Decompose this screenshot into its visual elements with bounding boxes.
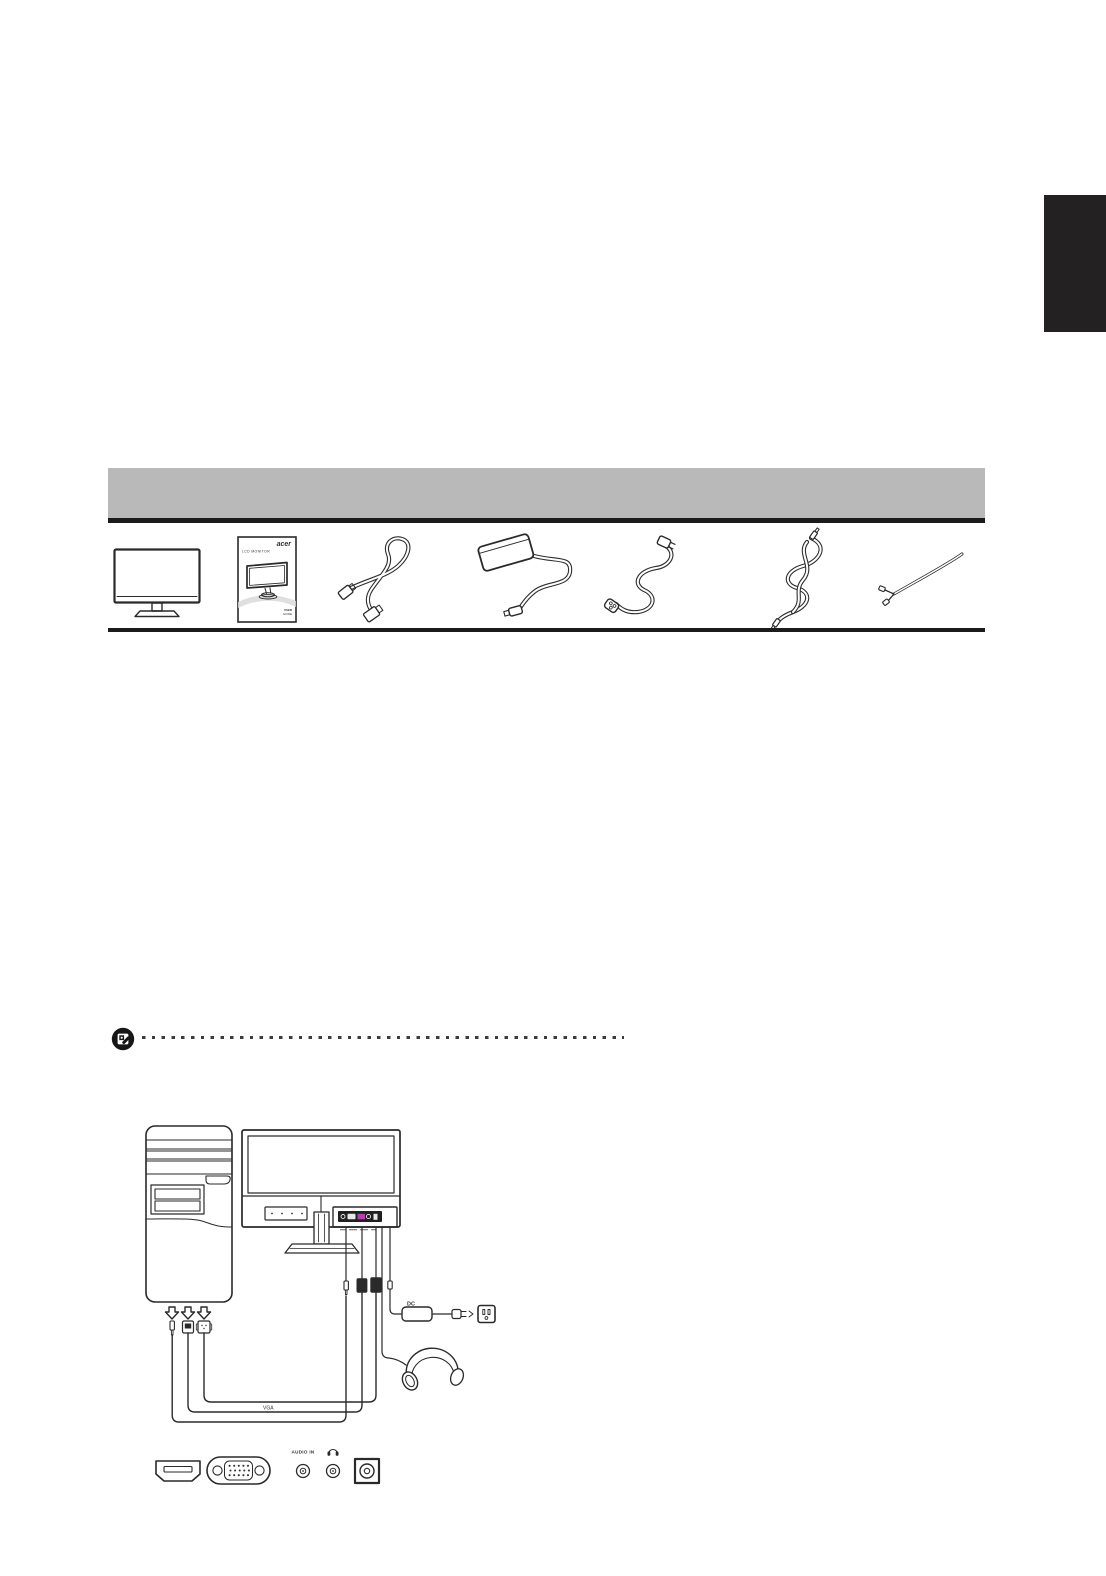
manual-page: acer LCD MONITOR USER GUIDE bbox=[0, 0, 1106, 1576]
cover-footer-2: GUIDE bbox=[283, 612, 292, 616]
cable-icon bbox=[874, 548, 968, 610]
connection-diagram: VGA bbox=[130, 1115, 530, 1565]
packing-row-divider bbox=[108, 628, 985, 632]
switch-icon bbox=[374, 1214, 378, 1220]
headphone-jack-icon bbox=[327, 1465, 340, 1478]
adapter-label: DC bbox=[407, 1302, 415, 1308]
headphone-cable bbox=[382, 1227, 406, 1365]
power-adapter-brick bbox=[402, 1307, 432, 1321]
hdmi-plug-icon bbox=[357, 1279, 367, 1292]
user-guide-icon: acer LCD MONITOR USER GUIDE bbox=[237, 536, 297, 623]
dc-in-jack-icon bbox=[355, 1459, 379, 1483]
monitor-icon bbox=[113, 548, 201, 620]
power-adapter-icon bbox=[472, 532, 584, 624]
headphones-icon bbox=[399, 1348, 465, 1392]
wall-outlet-icon bbox=[478, 1306, 495, 1323]
cover-brand: acer bbox=[277, 541, 293, 548]
stand-column bbox=[314, 1212, 329, 1244]
vga-cable-icon bbox=[324, 532, 438, 627]
power-cord-icon bbox=[588, 532, 688, 627]
connector-row: AUDIO IN bbox=[156, 1450, 379, 1485]
vga-port-icon bbox=[358, 1214, 366, 1220]
arrow-right-icon bbox=[469, 1311, 473, 1317]
cable-loops bbox=[172, 1292, 376, 1422]
audio-in-jack-icon bbox=[297, 1465, 310, 1478]
headphone-glyph-icon bbox=[328, 1450, 338, 1456]
dc-power-chain bbox=[388, 1227, 495, 1323]
pc-audio-plug-icon bbox=[170, 1321, 174, 1335]
cable-label: VGA bbox=[263, 1406, 274, 1412]
pc-vga-connector-icon bbox=[196, 1321, 211, 1333]
vga-socket-icon bbox=[207, 1457, 270, 1484]
audio-in-label: AUDIO IN bbox=[291, 1450, 314, 1455]
arrow-down-icons bbox=[166, 1307, 211, 1319]
cover-title: LCD MONITOR bbox=[242, 550, 270, 554]
monitor-port-panel bbox=[333, 1207, 397, 1230]
audio-plug-icon bbox=[344, 1281, 348, 1290]
note-dotted-line bbox=[142, 1036, 624, 1039]
ac-plug-icon bbox=[452, 1310, 466, 1319]
pc-hdmi-connector-icon bbox=[183, 1321, 194, 1333]
section-header-bar bbox=[108, 468, 985, 523]
dc-plug-icon bbox=[388, 1281, 392, 1289]
side-language-tab bbox=[1044, 195, 1106, 332]
audio-cable-icon bbox=[749, 528, 844, 627]
hdmi-socket-icon bbox=[156, 1461, 200, 1481]
hdmi-port-icon bbox=[348, 1214, 356, 1220]
note-icon bbox=[110, 1026, 136, 1052]
vga-plug-icon bbox=[371, 1278, 381, 1292]
computer-tower bbox=[146, 1126, 232, 1302]
monitor-button-panel bbox=[265, 1207, 307, 1220]
